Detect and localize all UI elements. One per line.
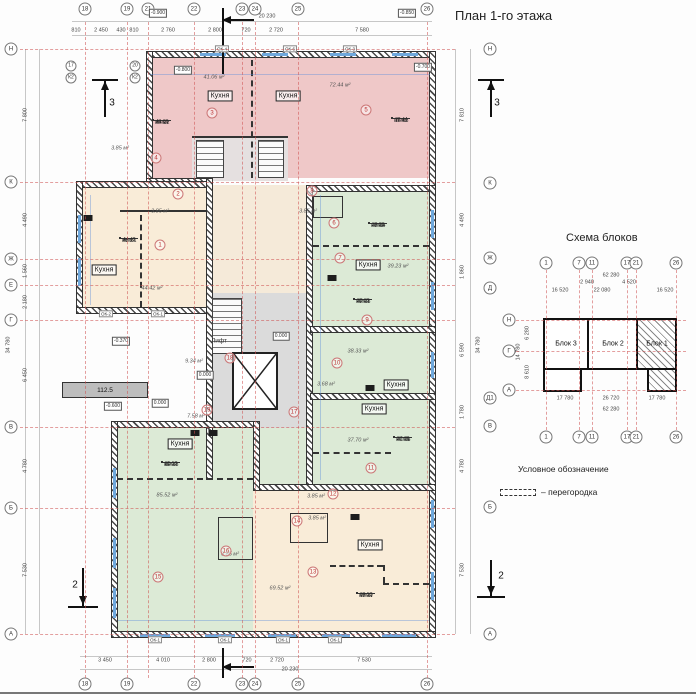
- axis-marker: К: [5, 176, 18, 189]
- construction-line: [320, 195, 321, 480]
- dimension-label: 4 780: [460, 459, 466, 473]
- partition: [313, 245, 429, 247]
- wall: [429, 51, 436, 188]
- room-number: 2: [173, 189, 184, 200]
- dimension-label: 7 580: [355, 28, 369, 34]
- dimension-label: 2 720: [270, 658, 284, 664]
- axis-marker: 18: [79, 3, 92, 16]
- section-mark: [477, 596, 505, 598]
- dim-rail: [72, 21, 432, 22]
- dimension-label: 720: [242, 658, 251, 664]
- block-label: Блок 2: [602, 341, 623, 348]
- legend-item-partition: – перегородка: [541, 487, 597, 497]
- axis-marker: К: [484, 177, 497, 190]
- dim-rail: [80, 669, 432, 670]
- page-title: План 1-го этажа: [455, 8, 552, 23]
- area-label: 3.85 м²: [307, 494, 325, 500]
- construction-line: [118, 620, 429, 621]
- apartment-info: кв №144.4248.27: [119, 237, 121, 239]
- scheme-dimension: 14 780: [516, 344, 522, 361]
- axis-marker: 18: [79, 678, 92, 691]
- section-label: 2: [72, 580, 78, 591]
- scheme-axis-marker: А: [503, 384, 516, 397]
- scheme-dimension: 26 720: [603, 396, 620, 402]
- window-label: ОК-1: [148, 636, 162, 643]
- scheme-axis-marker: 7: [573, 431, 586, 444]
- window: [431, 352, 434, 378]
- axis-line: [127, 22, 128, 678]
- dimension-label: 2 800: [208, 28, 222, 34]
- kitchen-label: Кухня: [384, 379, 409, 390]
- kitchen-label: Кухня: [92, 264, 117, 275]
- dimension-label: 2 180: [23, 295, 29, 309]
- axis-line: [148, 22, 149, 678]
- staircase: [258, 140, 284, 178]
- block-3-leg: [543, 368, 582, 392]
- scheme-dimension: 17 780: [557, 396, 574, 402]
- axis-marker: 25: [292, 3, 305, 16]
- axis-marker: 23: [236, 3, 249, 16]
- partition: [383, 565, 385, 583]
- scheme-dimension: 8 610: [525, 365, 531, 379]
- axis-marker: 22: [188, 678, 201, 691]
- dimension-label: 4 490: [23, 213, 29, 227]
- axis-marker: Ж: [5, 253, 18, 266]
- dim-rail: [470, 49, 471, 634]
- axis-marker: К2: [130, 73, 141, 84]
- window: [431, 210, 434, 238]
- room-number: 19: [202, 405, 213, 416]
- elevation-mark: 0.000: [273, 332, 290, 341]
- vent-shaft: [328, 275, 337, 281]
- dimension-total: 20 230: [259, 14, 276, 20]
- scheme-axis-marker: 7: [573, 257, 586, 270]
- section-label: 3: [109, 98, 115, 109]
- area-label: 39.23 м²: [388, 264, 409, 270]
- dimension-label: 7 810: [460, 108, 466, 122]
- dimension-label: 1 860: [460, 265, 466, 279]
- sheet-frame: [0, 692, 696, 694]
- dimension-label: 7 800: [23, 108, 29, 122]
- wall: [253, 484, 436, 491]
- axis-line: [20, 285, 455, 286]
- dim-rail: [72, 35, 432, 36]
- partition: [330, 565, 383, 567]
- scheme-axis-line: [516, 390, 686, 391]
- section-label: 2: [498, 571, 504, 582]
- apartment-info: кв №769.5273.31: [356, 592, 358, 594]
- scheme-axis-marker: Н: [503, 314, 516, 327]
- scheme-dimension: 16 520: [552, 288, 569, 294]
- dimension-label: 7 530: [460, 563, 466, 577]
- axis-marker: К2: [66, 73, 77, 84]
- block-label: Блок 3: [555, 341, 576, 348]
- window: [431, 500, 434, 528]
- room-number: 7: [335, 253, 346, 264]
- dimension-label: 6 450: [23, 368, 29, 382]
- area-label: 69.52 м²: [270, 586, 291, 592]
- dimension-label: 7 530: [357, 658, 371, 664]
- scheme-axis-line: [516, 320, 686, 321]
- entrance-ramp: 112.5: [62, 382, 148, 398]
- scheme-axis-marker: Г: [503, 345, 516, 358]
- kitchen-label: Кухня: [358, 539, 383, 550]
- axis-line: [298, 22, 299, 678]
- axis-line: [255, 22, 256, 678]
- dim-rail: [25, 49, 26, 634]
- room-number: 5: [361, 105, 372, 116]
- window-label: ОК-1: [276, 636, 290, 643]
- room-number: 16: [221, 546, 232, 557]
- axis-line: [194, 22, 195, 678]
- scheme-dimension: 16 520: [657, 288, 674, 294]
- room-number: 6: [329, 218, 340, 229]
- dimension-label: 1 560: [23, 264, 29, 278]
- room-number: 15: [153, 572, 164, 583]
- area-label: 37.70 м²: [348, 438, 369, 444]
- axis-marker: В: [484, 420, 497, 433]
- block-label: Блок 1: [646, 341, 667, 348]
- axis-line: [20, 320, 455, 321]
- elevation-mark: 0.000: [152, 399, 169, 408]
- window: [431, 572, 434, 600]
- area-label: 3.68 м²: [317, 382, 335, 388]
- scheme-axis-line: [516, 351, 686, 352]
- elevation-mark: -0.900: [149, 9, 167, 18]
- dimension-label: 810: [71, 28, 80, 34]
- axis-marker: 25: [292, 678, 305, 691]
- axis-marker: Н: [484, 43, 497, 56]
- scheme-axis-marker: 21: [630, 431, 643, 444]
- axis-line: [85, 22, 86, 678]
- apartment-info: кв №241.0644.91: [152, 119, 154, 121]
- area-label: 7.58 м²: [187, 414, 205, 420]
- dimension-label: 2 800: [202, 658, 216, 664]
- vent-shaft: [209, 430, 218, 436]
- dimension-label: 4 010: [156, 658, 170, 664]
- window: [431, 282, 434, 310]
- scheme-axis-line: [579, 270, 580, 430]
- elevation-mark: -0.800: [174, 66, 192, 75]
- axis-line: [242, 22, 243, 678]
- window: [113, 538, 116, 568]
- window: [330, 53, 356, 56]
- axis-line: [20, 508, 455, 509]
- axis-marker: 23: [236, 678, 249, 691]
- area-label: 38.33 м²: [348, 349, 369, 355]
- staircase: [196, 140, 224, 178]
- partition: [313, 452, 391, 454]
- partition-symbol-icon: [500, 489, 536, 496]
- scheme-dimension: 4 520: [622, 280, 636, 286]
- room-fill-apt8b: [253, 428, 313, 484]
- block-1-leg: [647, 368, 677, 392]
- apartment-info: кв №885.5289.31: [161, 461, 163, 463]
- axis-marker: 26: [421, 678, 434, 691]
- scheme-axis-line: [636, 270, 637, 430]
- wall: [76, 307, 213, 314]
- window: [78, 258, 81, 286]
- kitchen-label: Кухня: [168, 438, 193, 449]
- dim-rail: [80, 656, 432, 657]
- partition-room: [313, 196, 343, 218]
- partition: [140, 215, 142, 307]
- vent-shaft: [366, 385, 375, 391]
- wall: [310, 393, 436, 400]
- scheme-axis-marker: 11: [586, 431, 599, 444]
- scheme-axis-line: [546, 270, 547, 430]
- dimension-label: 4 780: [23, 459, 29, 473]
- scheme-axis-line: [627, 270, 628, 430]
- apartment-info: кв №372.4476.42: [391, 117, 393, 119]
- partition: [251, 60, 253, 178]
- dim-rail: [39, 49, 40, 634]
- area-label: 41.06 м²: [204, 75, 225, 81]
- wall: [306, 185, 436, 192]
- axis-line: [20, 259, 455, 260]
- room-number: 13: [308, 567, 319, 578]
- room-number: 10: [332, 358, 343, 369]
- scheme-axis-line: [592, 270, 593, 430]
- window: [392, 53, 418, 56]
- room-fill-apt7: [253, 491, 429, 631]
- window: [113, 588, 116, 618]
- axis-marker: Б: [484, 501, 497, 514]
- axis-marker: 20: [130, 61, 141, 72]
- axis-marker: 19: [121, 3, 134, 16]
- scheme-axis-marker: 26: [670, 431, 683, 444]
- window-label: ОК-1: [218, 636, 232, 643]
- axis-marker: Г: [5, 314, 18, 327]
- dim-rail: [455, 49, 456, 634]
- room-number: 8: [307, 186, 318, 197]
- apartment-info: кв №439.2343.08: [368, 222, 370, 224]
- room-fill-corridor-top: [213, 185, 307, 293]
- room-number: 18: [225, 353, 236, 364]
- area-label: 44.42 м²: [142, 286, 163, 292]
- dimension-total: 34 780: [476, 337, 482, 354]
- dimension-label: 430: [116, 28, 125, 34]
- window: [113, 468, 116, 498]
- drawing-sheet: План 1-го этажа Схема блоков Условное об…: [0, 0, 696, 700]
- axis-marker: 22: [188, 3, 201, 16]
- axis-marker: Б: [5, 502, 18, 515]
- vent-shaft: [351, 514, 360, 520]
- section-label: 3: [494, 98, 500, 109]
- window-label: ОК-2: [99, 310, 113, 317]
- room-number: 3: [207, 108, 218, 119]
- section-arrow-icon: [487, 81, 495, 90]
- area-label: 3.85 м²: [151, 209, 169, 215]
- dimension-label: 1 780: [460, 405, 466, 419]
- axis-marker: 26: [421, 3, 434, 16]
- axis-marker: Н: [5, 43, 18, 56]
- vent-shaft: [191, 430, 200, 436]
- scheme-axis-marker: 26: [670, 257, 683, 270]
- scheme-dimension: 22 080: [594, 288, 611, 294]
- kitchen-label: Кухня: [276, 90, 301, 101]
- kitchen-label: Кухня: [208, 90, 233, 101]
- wall: [429, 185, 436, 638]
- room-number: 14: [292, 516, 303, 527]
- area-label: 85.52 м²: [157, 493, 178, 499]
- section-arrow-icon: [101, 81, 109, 90]
- dimension-label: 2 450: [94, 28, 108, 34]
- axis-marker: Ж: [484, 252, 497, 265]
- axis-marker: А: [5, 628, 18, 641]
- axis-line: [427, 22, 428, 678]
- scheme-axis-marker: 1: [540, 257, 553, 270]
- partition: [192, 136, 288, 138]
- area-label: 72.44 м²: [330, 83, 351, 89]
- dimension-label: 2 760: [161, 28, 175, 34]
- wall: [310, 326, 436, 333]
- axis-marker: 24: [249, 678, 262, 691]
- axis-marker: Е: [5, 279, 18, 292]
- dimension-total: 20 230: [282, 667, 299, 673]
- scheme-dimension: 17 780: [649, 396, 666, 402]
- dimension-total: 34 780: [6, 337, 12, 354]
- section-arrow-icon: [222, 663, 231, 671]
- axis-marker: В: [5, 421, 18, 434]
- staircase: [212, 298, 242, 354]
- axis-marker: Д1: [484, 392, 497, 405]
- dimension-label: 2 720: [269, 28, 283, 34]
- section-arrow-icon: [487, 586, 495, 595]
- dimension-label: 7 530: [23, 563, 29, 577]
- partition: [117, 478, 253, 480]
- axis-marker: 19: [121, 678, 134, 691]
- elevation-mark: -0.600: [104, 402, 122, 411]
- kitchen-label: Кухня: [356, 259, 381, 270]
- scheme-dimension: 6 280: [525, 326, 531, 340]
- scheme-axis-line: [676, 270, 677, 430]
- axis-line: [20, 427, 455, 428]
- kitchen-label: Кухня: [362, 403, 387, 414]
- scheme-dimension: 62 280: [603, 407, 620, 413]
- axis-marker: А: [484, 628, 497, 641]
- window-label: ОК-1: [151, 310, 165, 317]
- elevation-mark: -0.700: [414, 63, 432, 72]
- room-number: 11: [366, 463, 377, 474]
- apartment-info: кв №637.7041.05: [393, 436, 395, 438]
- room-number: 12: [328, 489, 339, 500]
- elevator-label: Лифт: [211, 338, 227, 345]
- axis-marker: 17: [66, 61, 77, 72]
- dimension-label: 6 590: [460, 343, 466, 357]
- dimension-label: 3 450: [98, 658, 112, 664]
- scheme-dimension: 62 280: [603, 273, 620, 279]
- window-label: ОК-1: [328, 636, 342, 643]
- elevation-mark: -0.850: [398, 9, 416, 18]
- axis-marker: Д: [484, 282, 497, 295]
- construction-line: [90, 195, 91, 305]
- dimension-label: 4 490: [460, 213, 466, 227]
- scheme-axis-marker: 11: [586, 257, 599, 270]
- axis-line: [20, 49, 455, 50]
- wall: [76, 181, 83, 314]
- scheme-axis-marker: 1: [540, 431, 553, 444]
- scheme-axis-marker: 21: [630, 257, 643, 270]
- window: [78, 215, 81, 243]
- room-number: 1: [155, 240, 166, 251]
- apartment-info: кв №538.3342.01: [353, 298, 355, 300]
- elevation-mark: 0.000: [197, 371, 214, 380]
- room-number: 4: [151, 153, 162, 164]
- scheme-title: Схема блоков: [566, 232, 638, 244]
- section-mark: [68, 606, 98, 608]
- dimension-label: 810: [129, 28, 138, 34]
- window: [262, 53, 288, 56]
- partition: [383, 583, 429, 585]
- section-arrow-icon: [222, 16, 231, 24]
- legend-title: Условное обозначение: [518, 464, 609, 474]
- axis-line: [20, 182, 455, 183]
- axis-line: [20, 634, 455, 635]
- wall: [306, 185, 313, 485]
- area-label: 3.85 м²: [299, 209, 317, 215]
- area-label: 3.85 м²: [308, 516, 326, 522]
